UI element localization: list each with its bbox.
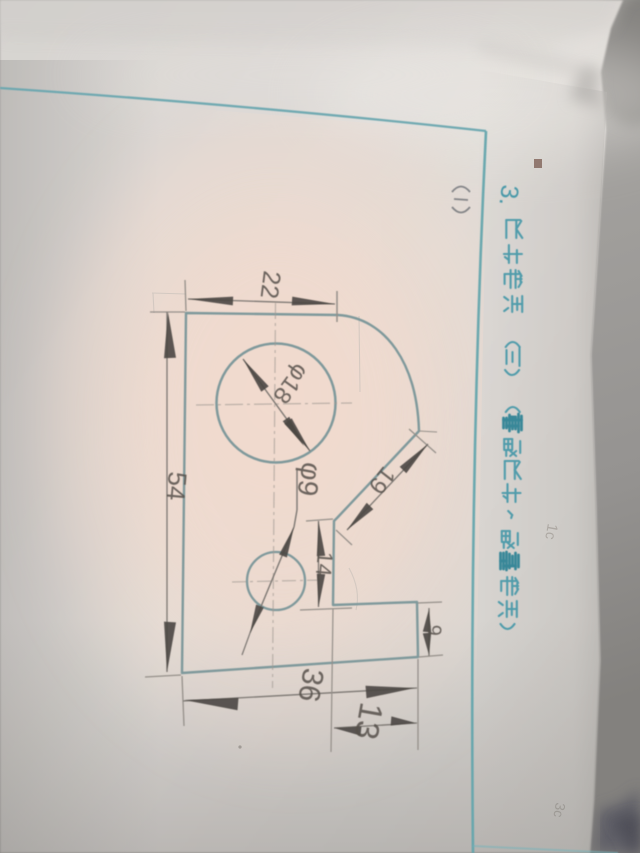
svg-text:φ9: φ9 [291,460,327,499]
svg-text:3c: 3c [550,801,568,818]
svg-text:14: 14 [311,551,338,578]
svg-text:36: 36 [291,666,329,705]
svg-text:54: 54 [161,470,193,501]
svg-text:13: 13 [348,700,391,743]
svg-text:22: 22 [255,269,286,300]
svg-text:9: 9 [422,624,445,637]
svg-text:3.: 3. [494,183,524,207]
